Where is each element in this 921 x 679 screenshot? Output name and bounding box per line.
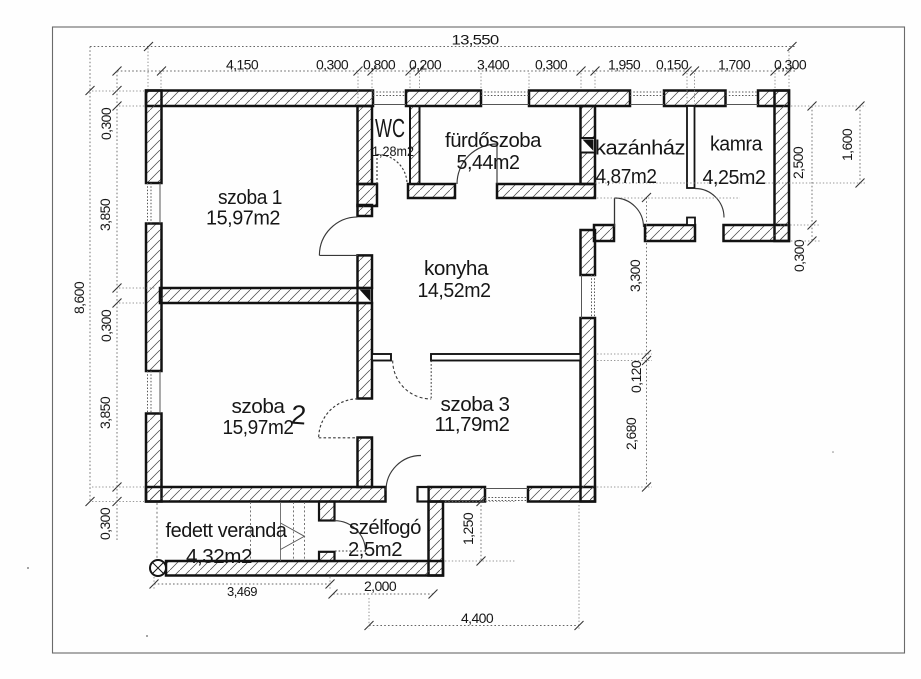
svg-text:15,97m2: 15,97m2 [223,417,294,439]
svg-text:4,87m2: 4,87m2 [596,166,657,188]
svg-text:1,700: 1,700 [718,57,751,73]
svg-text:0,300: 0,300 [316,57,349,73]
svg-text:0,300: 0,300 [98,107,114,140]
svg-text:3,400: 3,400 [477,57,510,73]
svg-text:4,32m2: 4,32m2 [186,546,252,568]
svg-text:szoba 1: szoba 1 [218,187,282,209]
svg-text:kazánház: kazánház [595,138,685,160]
svg-text:1,250: 1,250 [460,512,476,545]
svg-text:fedett veranda: fedett veranda [166,520,288,542]
svg-text:0,150: 0,150 [656,57,689,73]
svg-text:1,950: 1,950 [608,57,641,73]
svg-text:4,150: 4,150 [226,57,259,73]
svg-text:8,600: 8,600 [71,281,87,314]
svg-text:kamra: kamra [710,134,763,156]
svg-text:0,300: 0,300 [791,239,807,272]
svg-text:0,300: 0,300 [774,57,807,73]
svg-text:11,79m2: 11,79m2 [435,414,510,436]
svg-text:szoba: szoba [232,396,286,418]
svg-text:15,97m2: 15,97m2 [206,208,280,230]
svg-text:3,850: 3,850 [97,396,113,429]
svg-text:2,5m2: 2,5m2 [348,539,402,561]
svg-text:3,469: 3,469 [227,584,257,599]
svg-text:0,300: 0,300 [535,57,568,73]
svg-text:5,44m2: 5,44m2 [457,152,520,174]
svg-text:0,300: 0,300 [97,507,113,540]
svg-text:2,000: 2,000 [364,578,397,594]
svg-text:14,52m2: 14,52m2 [418,280,491,302]
svg-text:1,600: 1,600 [839,128,855,161]
svg-text:3,850: 3,850 [97,198,113,231]
svg-text:0,200: 0,200 [409,57,442,73]
svg-text:2,680: 2,680 [623,417,639,450]
svg-text:2,500: 2,500 [790,146,806,179]
svg-text:0,300: 0,300 [98,309,114,342]
svg-text:13,550: 13,550 [452,32,500,48]
svg-text:1,28m2: 1,28m2 [372,144,414,159]
svg-text:4,400: 4,400 [461,610,494,626]
svg-text:0,120: 0,120 [628,360,644,393]
svg-text:3,300: 3,300 [627,259,643,292]
svg-text:konyha: konyha [424,258,489,280]
svg-text:WC: WC [375,113,405,143]
svg-text:szoba 3: szoba 3 [441,394,510,416]
svg-text:4,25m2: 4,25m2 [703,167,766,189]
svg-text:szélfogó: szélfogó [349,517,421,539]
svg-text:fürdőszoba: fürdőszoba [445,130,542,152]
svg-text:0,800: 0,800 [363,57,396,73]
